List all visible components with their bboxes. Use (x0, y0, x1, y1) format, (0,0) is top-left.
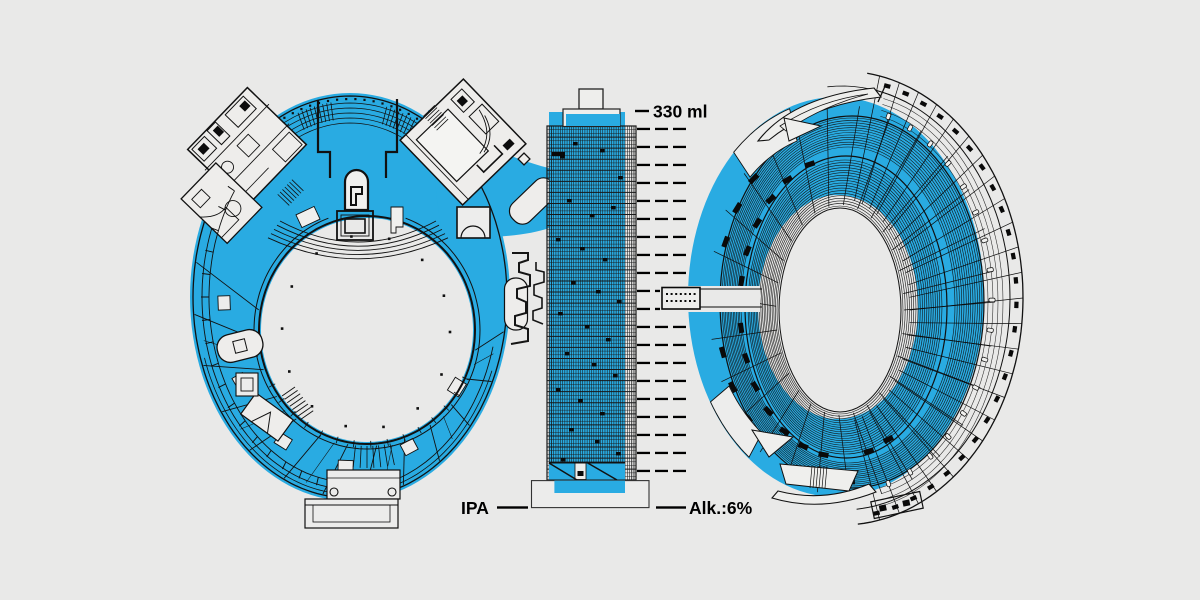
svg-text:330 ml: 330 ml (653, 102, 707, 122)
svg-text:Alk.:6%: Alk.:6% (689, 498, 753, 518)
svg-text:IPA: IPA (461, 498, 489, 518)
